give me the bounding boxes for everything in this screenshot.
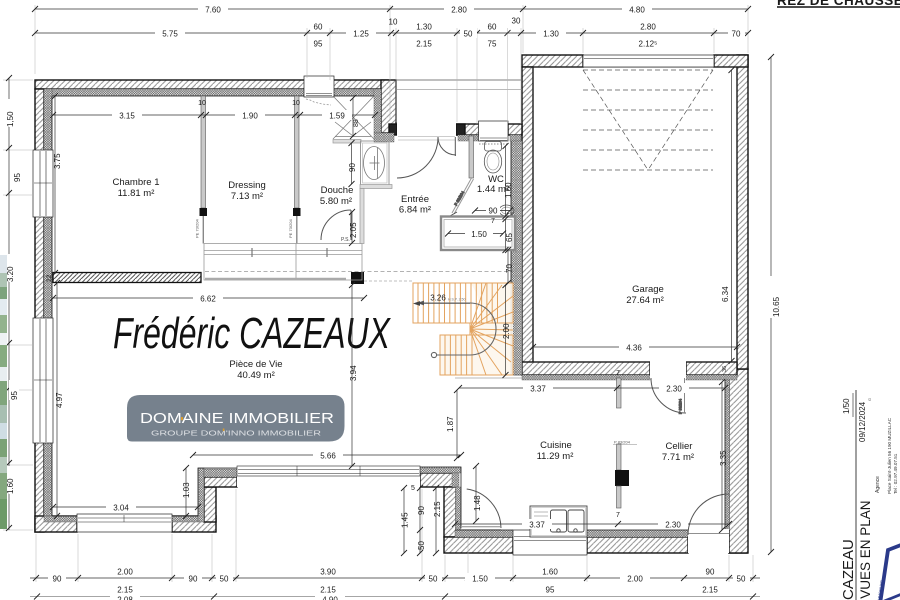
svg-text:2.30: 2.30 [666,385,682,394]
svg-text:40.49 m²: 40.49 m² [237,370,275,381]
svg-text:50: 50 [464,30,473,39]
svg-text:3.90: 3.90 [320,568,336,577]
svg-text:PE 73/204: PE 73/204 [195,219,200,238]
svg-text:3.37: 3.37 [530,385,546,394]
svg-text:95: 95 [546,586,555,595]
svg-text:Place Saint-Julien 56 190 MUZI: Place Saint-Julien 56 190 MUZILLAC [887,417,892,494]
svg-text:3.75: 3.75 [53,153,62,169]
svg-text:65: 65 [505,233,514,242]
svg-text:Entrée: Entrée [401,194,429,205]
svg-text:50: 50 [429,575,438,584]
svg-text:3.94: 3.94 [349,365,358,381]
svg-text:10: 10 [292,100,300,107]
svg-text:7.13 m²: 7.13 m² [231,191,263,202]
svg-text:1.48: 1.48 [473,495,482,511]
svg-text:Frédéric CAZEAUX: Frédéric CAZEAUX [113,309,391,358]
svg-text:P 83/204: P 83/204 [679,399,683,414]
svg-text:P 83/204: P 83/204 [614,440,631,445]
svg-text:1.90: 1.90 [242,112,258,121]
svg-text:70: 70 [505,264,514,273]
svg-text:7.71 m²: 7.71 m² [662,452,694,463]
svg-text:7.60: 7.60 [205,6,221,15]
svg-text:1.87: 1.87 [446,416,455,432]
svg-text:2.12⁵: 2.12⁵ [639,40,658,49]
svg-text:2.15: 2.15 [416,40,432,49]
svg-text:Chambre 1: Chambre 1 [113,177,160,188]
svg-text:2.15: 2.15 [117,586,133,595]
svg-text:95: 95 [13,173,22,182]
svg-text:10: 10 [198,100,206,107]
svg-text:3.37: 3.37 [529,521,545,530]
svg-text:2.15: 2.15 [433,501,442,517]
svg-text:95: 95 [10,391,19,400]
svg-text:3.35: 3.35 [719,450,728,466]
svg-text:1.30: 1.30 [416,23,432,32]
svg-text:Cuisine: Cuisine [540,440,572,451]
svg-text:11.81 m²: 11.81 m² [118,188,155,199]
svg-text:60: 60 [314,23,323,32]
svg-text:1.25: 1.25 [353,30,369,39]
svg-text:CAZEAU: CAZEAU [840,539,857,600]
svg-text:2.00: 2.00 [117,568,133,577]
svg-text:27.64 m²: 27.64 m² [626,295,664,306]
svg-text:7: 7 [616,370,620,377]
svg-text:2.80: 2.80 [640,23,656,32]
svg-text:2.15: 2.15 [702,586,718,595]
svg-text:1.50: 1.50 [472,575,488,584]
svg-text:1.60: 1.60 [542,568,558,577]
svg-text:1.60: 1.60 [6,478,15,494]
svg-text:2.30: 2.30 [665,521,681,530]
svg-text:1.30: 1.30 [543,30,559,39]
svg-text:90: 90 [348,163,357,172]
svg-text:60: 60 [488,23,497,32]
svg-text:GROUPE DOM'INNO IMMOBILIER: GROUPE DOM'INNO IMMOBILIER [151,431,321,438]
svg-text:1.44 m²: 1.44 m² [477,184,509,195]
svg-text:5.66: 5.66 [320,452,336,461]
svg-text:10: 10 [389,18,398,27]
svg-text:H.S.P. 2.50: H.S.P. 2.50 [448,298,466,302]
svg-text:11.29 m²: 11.29 m² [537,451,574,462]
svg-text:7: 7 [616,512,620,519]
svg-text:DOMAINE IMMOBILIER: DOMAINE IMMOBILIER [140,410,334,427]
svg-text:3.26: 3.26 [430,294,446,303]
svg-text:Dressing: Dressing [228,180,266,191]
svg-text:3.15: 3.15 [119,112,135,121]
svg-text:Agence: Agence [875,476,881,493]
svg-text:1.45: 1.45 [401,512,410,528]
svg-text:09/12/2024: 09/12/2024 [858,401,867,442]
svg-text:95: 95 [314,40,323,49]
svg-text:90: 90 [706,568,715,577]
svg-text:6.84 m²: 6.84 m² [399,205,431,216]
svg-text:Tel : 02.97.49.07.51: Tel : 02.97.49.07.51 [893,453,898,494]
svg-text:G: G [867,398,872,401]
svg-text:10.65: 10.65 [772,296,781,317]
svg-text:50: 50 [417,541,426,550]
svg-text:4.97: 4.97 [55,392,64,408]
svg-text:90: 90 [189,575,198,584]
svg-text:6.34: 6.34 [721,286,730,302]
svg-text:7: 7 [491,218,495,225]
svg-text:3.04: 3.04 [113,504,129,513]
svg-text:P.S.: P.S. [341,237,350,243]
svg-text:Douche: Douche [321,185,354,196]
svg-text:5.75: 5.75 [162,30,178,39]
svg-text:2.80: 2.80 [451,6,467,15]
svg-text:30: 30 [512,17,521,26]
svg-text:70: 70 [732,30,741,39]
svg-text:4.36: 4.36 [626,344,642,353]
svg-text:6.62: 6.62 [200,295,216,304]
svg-text:1,50: 1,50 [6,111,15,127]
svg-text:Garage: Garage [632,284,664,295]
svg-text:88: 88 [353,119,360,127]
svg-text:4.80: 4.80 [629,6,645,15]
svg-text:1.03: 1.03 [182,482,191,498]
svg-text:PE 73/204: PE 73/204 [288,219,293,238]
svg-text:- VUES EN PLAN: - VUES EN PLAN [858,500,873,600]
svg-text:90: 90 [489,207,498,216]
svg-text:75: 75 [488,40,497,49]
svg-text:Cellier: Cellier [666,441,693,452]
svg-text:3.20: 3.20 [6,266,15,282]
svg-text:5.80 m²: 5.80 m² [320,196,352,207]
svg-text:50: 50 [220,575,229,584]
svg-text:4.90: 4.90 [322,596,338,600]
svg-text:2.15: 2.15 [320,586,336,595]
svg-text:1.50: 1.50 [471,230,487,239]
svg-text:2.08: 2.08 [117,596,133,600]
svg-text:2.00: 2.00 [502,323,511,339]
svg-text:36: 36 [722,366,728,372]
svg-text:50: 50 [737,575,746,584]
svg-text:1/50: 1/50 [842,398,851,414]
svg-text:2.05: 2.05 [349,222,358,238]
svg-text:90: 90 [417,506,426,515]
svg-text:2.00: 2.00 [627,575,643,584]
svg-text:1.59: 1.59 [329,112,345,121]
svg-text:5: 5 [411,485,415,492]
svg-text:90: 90 [53,575,62,584]
svg-text:Pièce de Vie: Pièce de Vie [229,359,282,370]
